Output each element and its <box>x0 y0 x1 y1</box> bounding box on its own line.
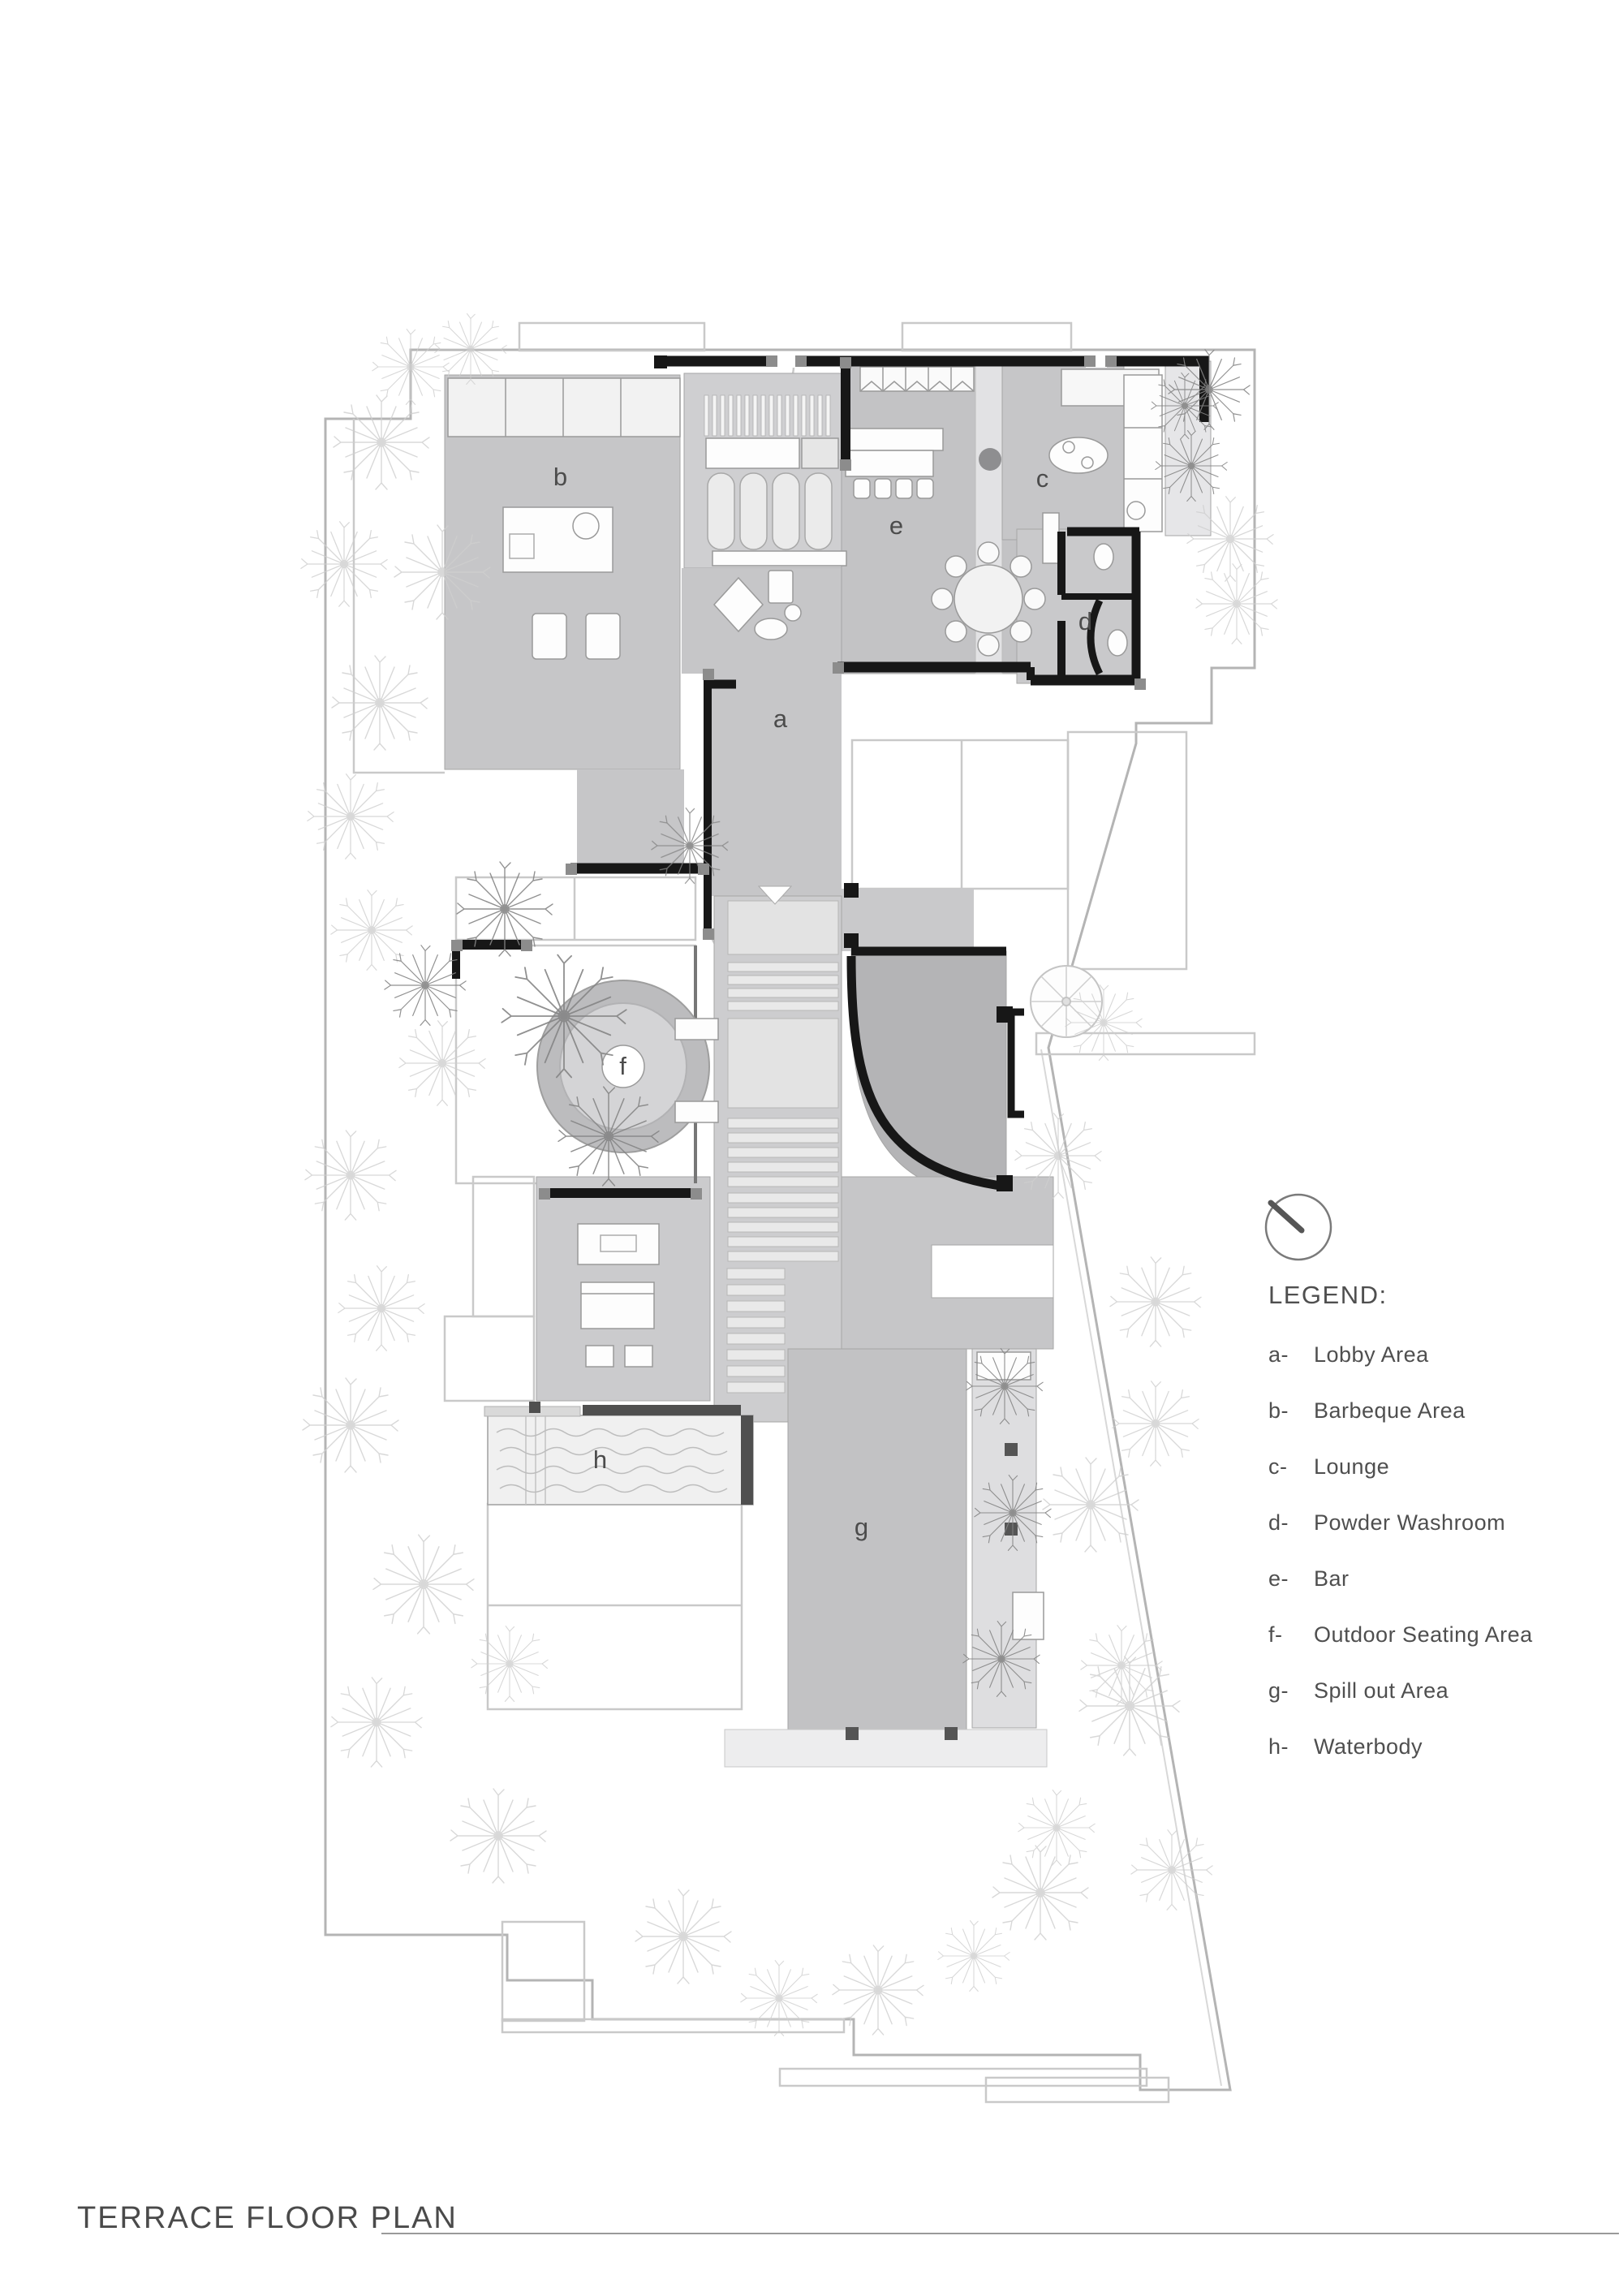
room-label-h: h <box>593 1445 608 1475</box>
room-label-a: a <box>773 704 788 734</box>
title-underline <box>381 2233 1619 2234</box>
room-label-f: f <box>619 1052 627 1081</box>
legend-item-h: h-Waterbody <box>1268 1734 1623 1760</box>
room-label-d: d <box>1078 607 1093 636</box>
room-label-e: e <box>889 511 904 541</box>
legend-item-d: d-Powder Washroom <box>1268 1510 1623 1536</box>
legend-item-label: Lounge <box>1314 1454 1389 1480</box>
north-arrow-icon <box>1266 1195 1331 1260</box>
legend-item-g: g-Spill out Area <box>1268 1678 1623 1704</box>
legend-item-label: Waterbody <box>1314 1734 1423 1760</box>
legend-item-key: a- <box>1268 1342 1314 1368</box>
room-label-c: c <box>1036 464 1050 493</box>
legend-item-key: d- <box>1268 1510 1314 1536</box>
legend-item-label: Bar <box>1314 1566 1350 1592</box>
legend: LEGEND: a-Lobby Areab-Barbeque Areac-Lou… <box>1268 1281 1623 1790</box>
legend-item-c: c-Lounge <box>1268 1454 1623 1480</box>
page-title: TERRACE FLOOR PLAN <box>77 2201 458 2236</box>
legend-item-label: Outdoor Seating Area <box>1314 1622 1533 1648</box>
legend-item-f: f-Outdoor Seating Area <box>1268 1622 1623 1648</box>
legend-item-e: e-Bar <box>1268 1566 1623 1592</box>
legend-item-key: c- <box>1268 1454 1314 1480</box>
terrace-floor-plan-sheet: abcdefgh LEGEND: a-Lobby Areab-Barbeque … <box>0 0 1623 2296</box>
floor-plan-drawing <box>0 0 1623 2296</box>
legend-item-key: f- <box>1268 1622 1314 1648</box>
legend-list: a-Lobby Areab-Barbeque Areac-Lounged-Pow… <box>1268 1342 1623 1760</box>
legend-item-label: Powder Washroom <box>1314 1510 1505 1536</box>
spiral-stair <box>1031 966 1102 1037</box>
legend-item-label: Barbeque Area <box>1314 1398 1466 1424</box>
legend-item-key: b- <box>1268 1398 1314 1424</box>
legend-heading: LEGEND: <box>1268 1281 1623 1310</box>
legend-item-label: Spill out Area <box>1314 1678 1449 1704</box>
legend-item-a: a-Lobby Area <box>1268 1342 1623 1368</box>
legend-item-key: h- <box>1268 1734 1314 1760</box>
room-label-g: g <box>855 1513 869 1542</box>
legend-item-key: e- <box>1268 1566 1314 1592</box>
legend-item-label: Lobby Area <box>1314 1342 1429 1368</box>
waterbody <box>484 1402 753 1505</box>
room-label-b: b <box>553 463 568 492</box>
legend-item-key: g- <box>1268 1678 1314 1704</box>
legend-item-b: b-Barbeque Area <box>1268 1398 1623 1424</box>
